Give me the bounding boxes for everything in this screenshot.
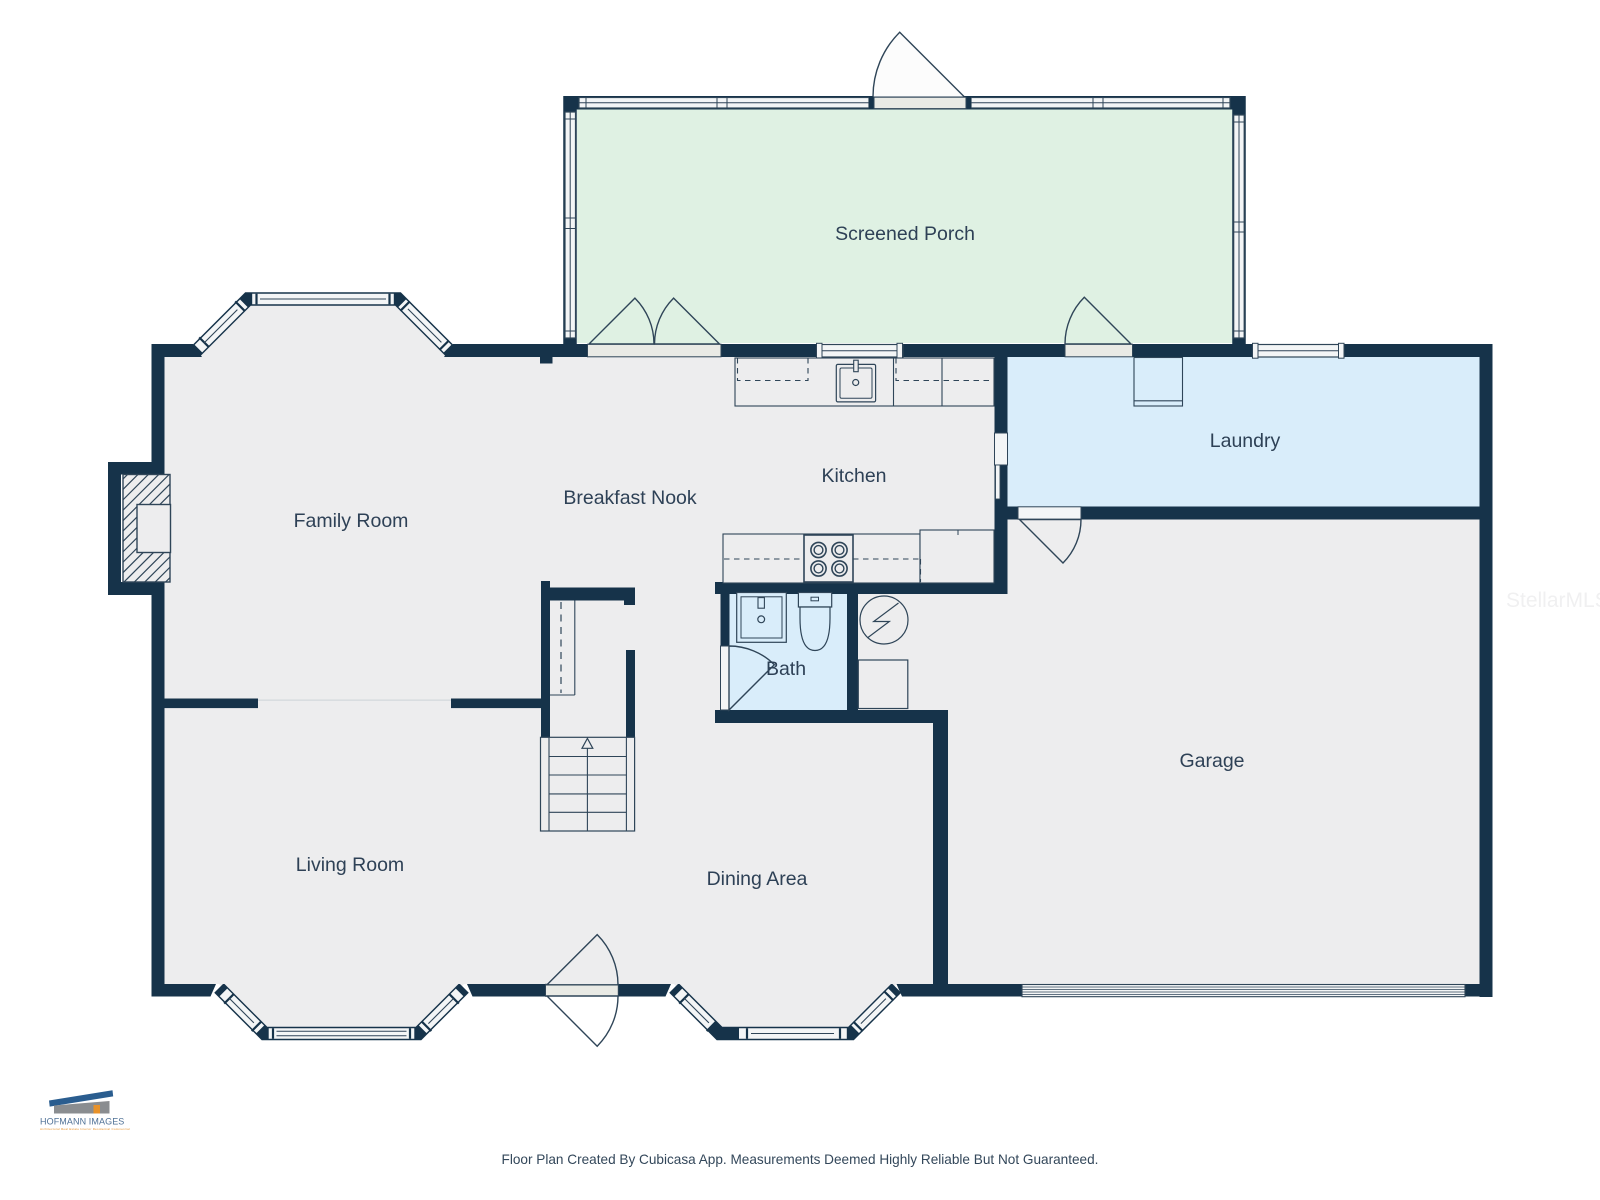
svg-text:Breakfast Nook: Breakfast Nook xyxy=(563,487,697,509)
svg-text:Living Room: Living Room xyxy=(296,854,404,876)
svg-text:HOFMANN IMAGES: HOFMANN IMAGES xyxy=(40,1117,124,1127)
svg-text:Bath: Bath xyxy=(766,658,806,680)
svg-text:Architectural Real Estate: Architectural Real Estate Interior Resid… xyxy=(40,1127,130,1131)
svg-text:Screened Porch: Screened Porch xyxy=(835,223,975,245)
svg-text:Garage: Garage xyxy=(1179,750,1244,772)
svg-text:Laundry: Laundry xyxy=(1210,430,1281,452)
svg-text:Floor Plan Created By Cubicasa: Floor Plan Created By Cubicasa App. Meas… xyxy=(502,1152,1099,1167)
svg-text:Dining Area: Dining Area xyxy=(707,868,808,890)
svg-text:StellarMLS: StellarMLS xyxy=(1506,589,1600,612)
svg-text:Kitchen: Kitchen xyxy=(821,465,886,487)
svg-text:Family Room: Family Room xyxy=(294,510,409,532)
